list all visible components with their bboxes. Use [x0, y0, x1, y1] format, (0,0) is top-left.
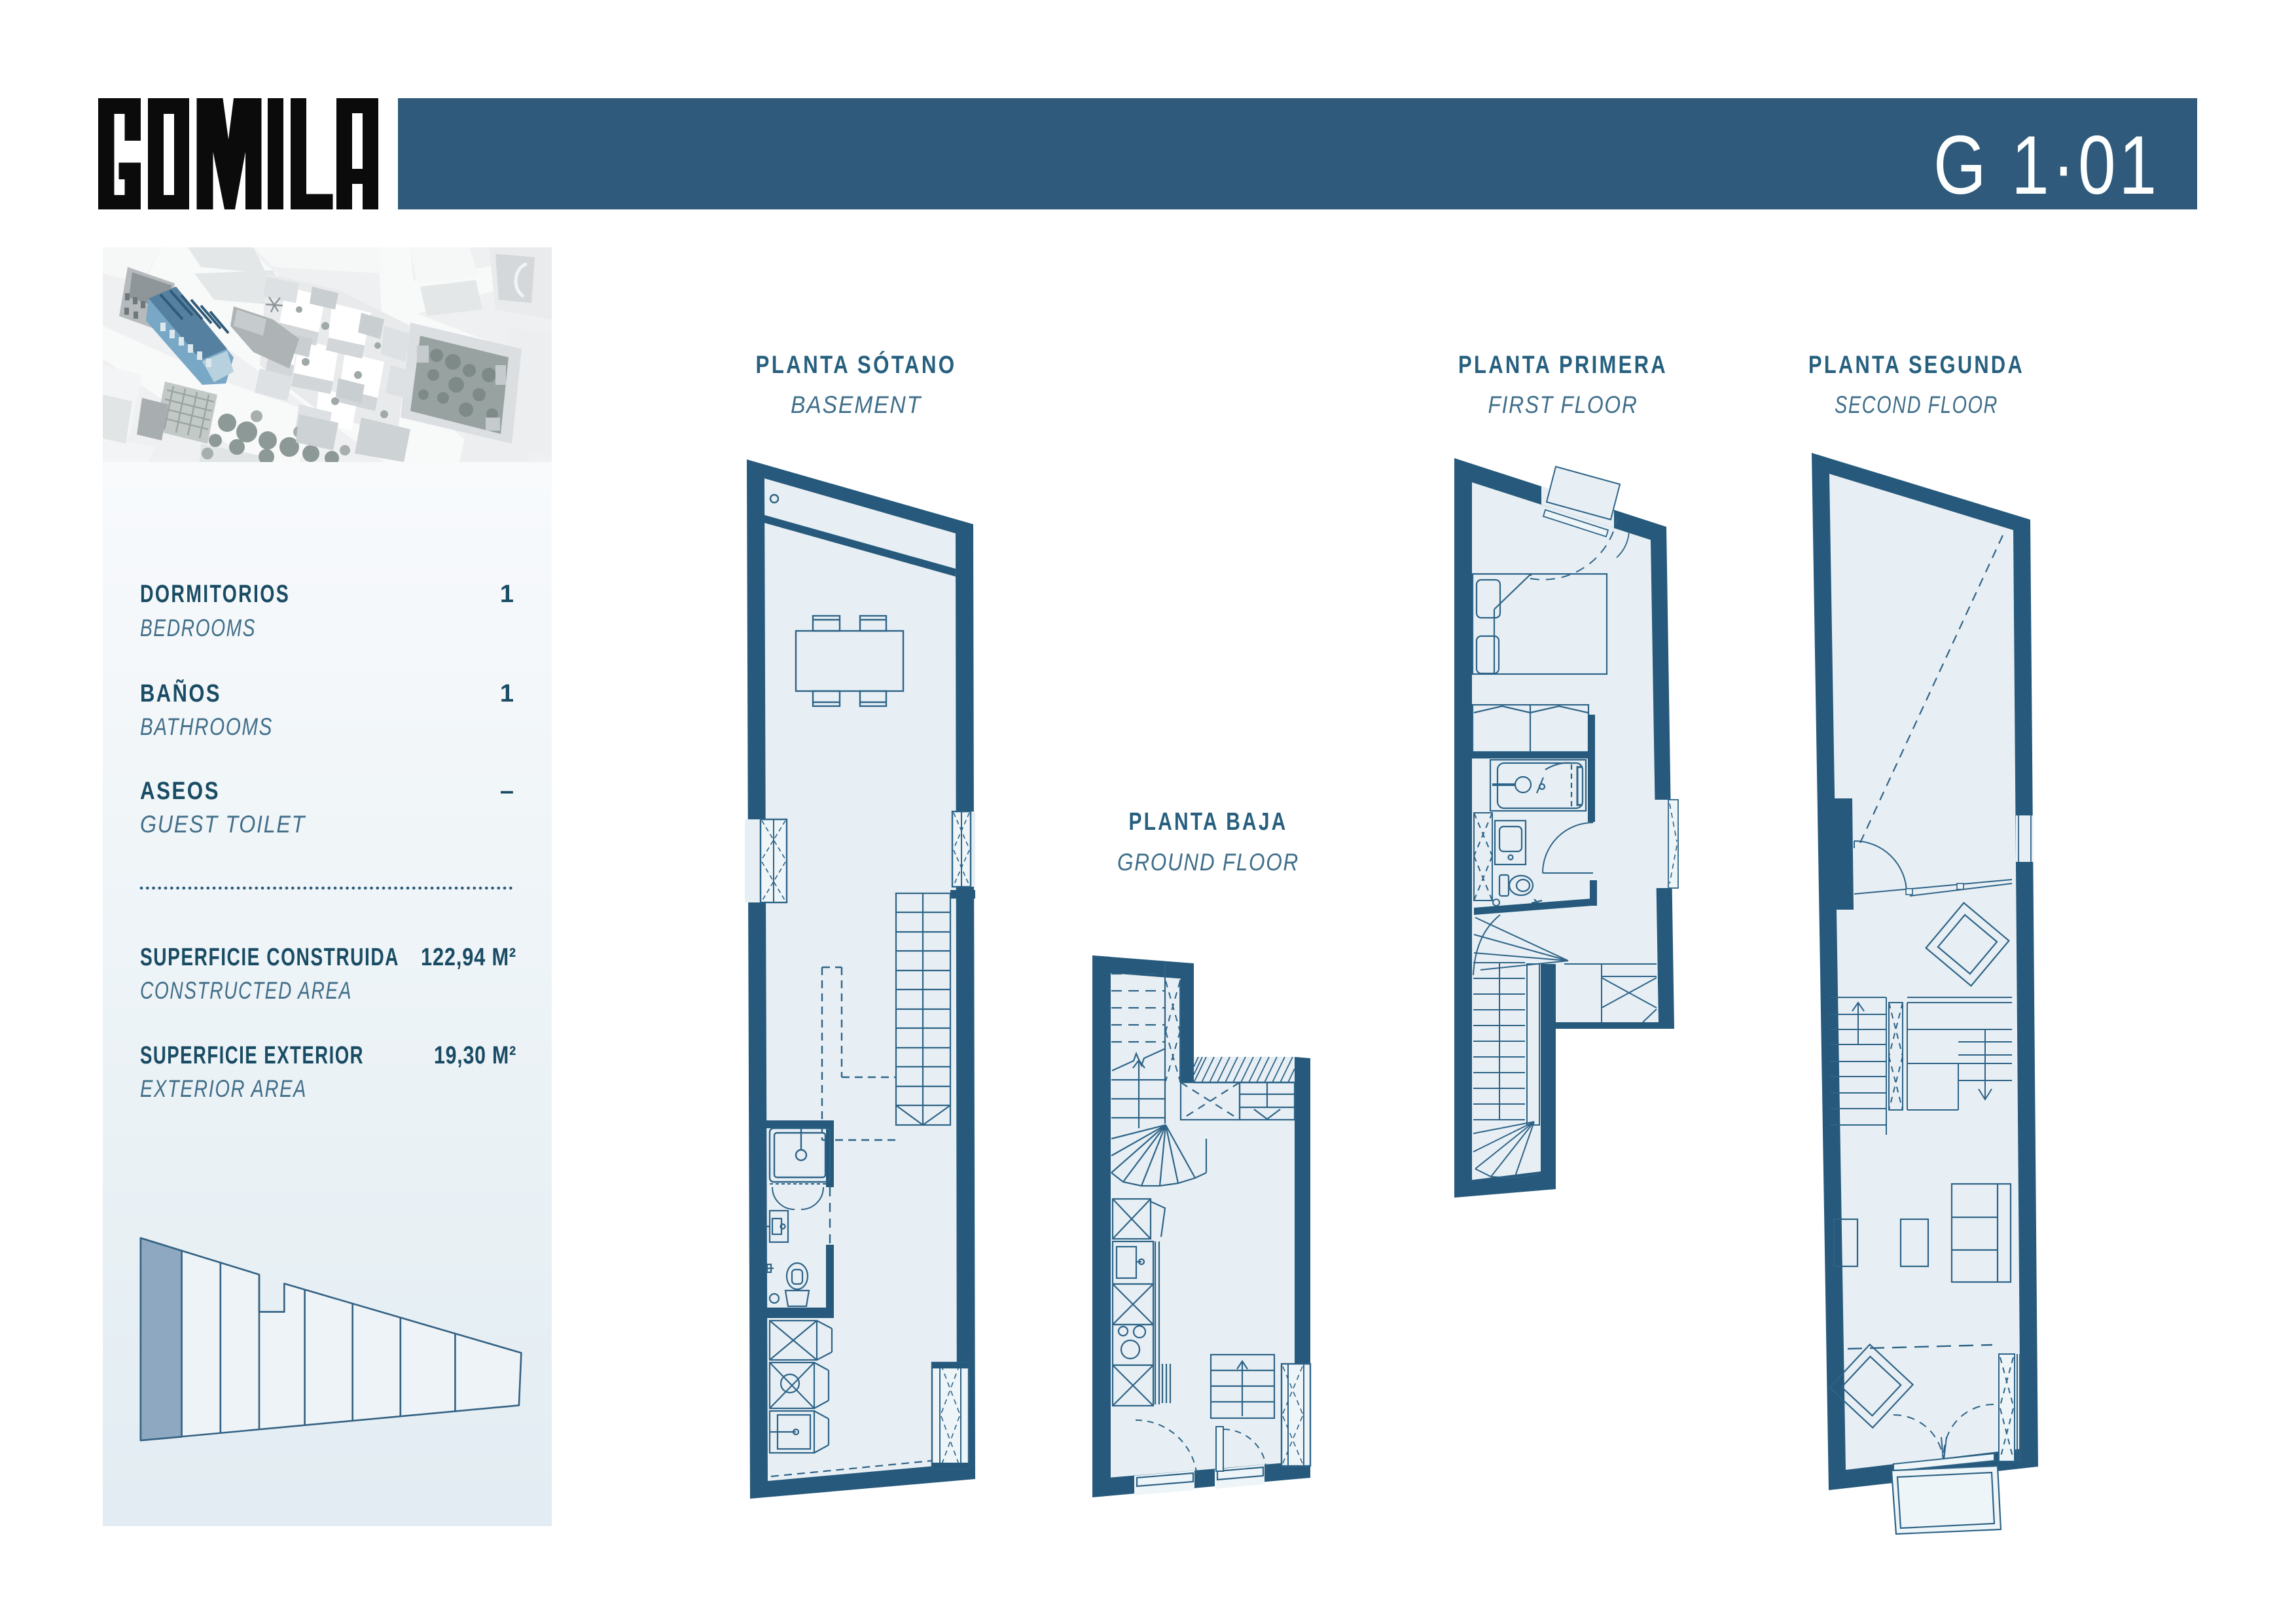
svg-text:SECOND FLOOR: SECOND FLOOR	[1835, 391, 1998, 418]
svg-text:PLANTA SEGUNDA: PLANTA SEGUNDA	[1808, 351, 2024, 379]
svg-text:BATHROOMS: BATHROOMS	[140, 713, 273, 740]
svg-text:PLANTA PRIMERA: PLANTA PRIMERA	[1458, 351, 1668, 379]
svg-text:122,94 M²: 122,94 M²	[421, 944, 516, 971]
svg-text:–: –	[500, 777, 514, 805]
svg-text:G 1·01: G 1·01	[1933, 118, 2160, 209]
svg-text:EXTERIOR AREA: EXTERIOR AREA	[140, 1075, 307, 1102]
svg-text:1: 1	[500, 680, 514, 707]
svg-text:ASEOS: ASEOS	[140, 777, 220, 805]
svg-text:GUEST TOILET: GUEST TOILET	[140, 811, 306, 838]
svg-text:1: 1	[500, 580, 514, 608]
svg-text:BEDROOMS: BEDROOMS	[140, 615, 256, 641]
svg-text:BAÑOS: BAÑOS	[140, 679, 221, 707]
svg-text:19,30 M²: 19,30 M²	[434, 1042, 516, 1069]
svg-text:BASEMENT: BASEMENT	[791, 391, 922, 418]
svg-text:PLANTA BAJA: PLANTA BAJA	[1129, 808, 1288, 836]
svg-text:PLANTA SÓTANO: PLANTA SÓTANO	[756, 350, 957, 379]
svg-text:FIRST FLOOR: FIRST FLOOR	[1488, 391, 1638, 418]
svg-text:SUPERFICIE CONSTRUIDA: SUPERFICIE CONSTRUIDA	[140, 944, 399, 971]
svg-text:CONSTRUCTED AREA: CONSTRUCTED AREA	[140, 977, 352, 1004]
svg-text:SUPERFICIE EXTERIOR: SUPERFICIE EXTERIOR	[140, 1042, 364, 1069]
svg-text:GROUND FLOOR: GROUND FLOOR	[1117, 849, 1299, 876]
svg-text:DORMITORIOS: DORMITORIOS	[140, 580, 290, 608]
